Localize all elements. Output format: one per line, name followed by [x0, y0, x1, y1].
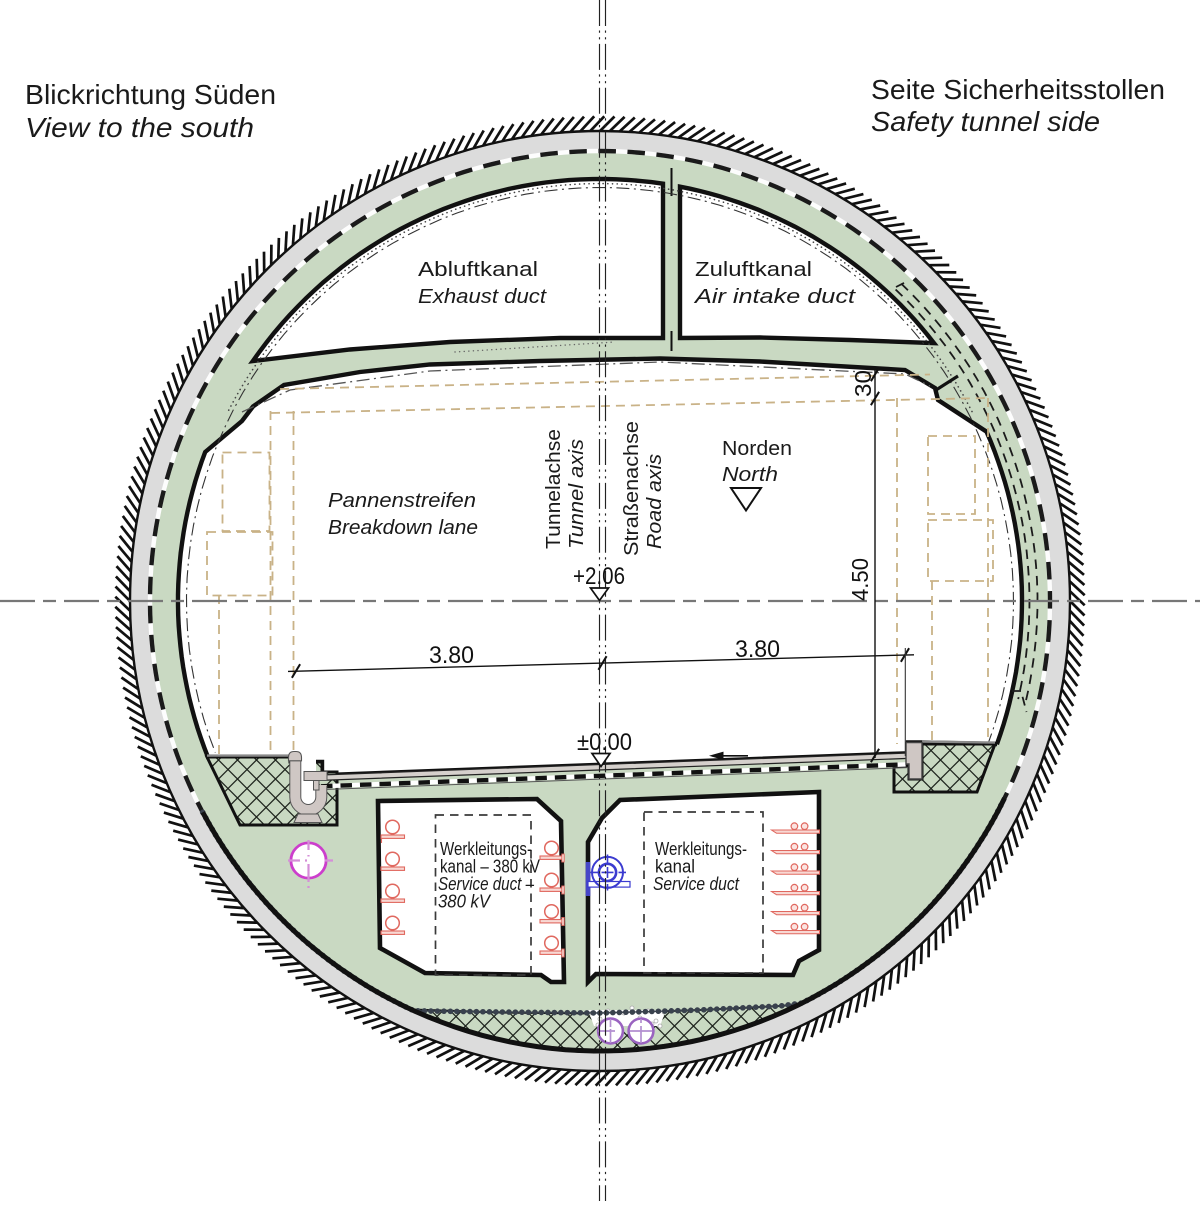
svg-text:30: 30: [850, 370, 876, 397]
svg-text:Blickrichtung Süden: Blickrichtung Süden: [25, 79, 276, 110]
svg-text:Abluftkanal: Abluftkanal: [418, 258, 538, 281]
svg-text:View to the south: View to the south: [25, 112, 254, 143]
svg-text:Breakdown lane: Breakdown lane: [328, 516, 478, 539]
svg-text:Tunnelachse: Tunnelachse: [543, 429, 565, 549]
svg-text:380 kV: 380 kV: [438, 891, 491, 912]
svg-text:Pannenstreifen: Pannenstreifen: [328, 489, 476, 512]
svg-text:+2.06: +2.06: [573, 563, 625, 590]
svg-text:3.80: 3.80: [429, 642, 474, 669]
svg-text:Exhaust duct: Exhaust duct: [418, 285, 547, 308]
svg-text:Zuluftkanal: Zuluftkanal: [695, 258, 812, 281]
svg-text:Norden: Norden: [722, 437, 792, 460]
svg-text:North: North: [722, 463, 778, 486]
svg-text:±0.00: ±0.00: [577, 729, 632, 756]
svg-text:Tunnel axis: Tunnel axis: [566, 439, 588, 549]
svg-text:Road axis: Road axis: [644, 454, 666, 549]
svg-text:Seite Sicherheitsstollen: Seite Sicherheitsstollen: [871, 74, 1165, 105]
svg-text:4.50: 4.50: [847, 558, 873, 601]
svg-text:Service duct: Service duct: [653, 873, 740, 894]
svg-text:Straßenachse: Straßenachse: [621, 421, 643, 556]
svg-text:Air intake duct: Air intake duct: [693, 285, 857, 308]
svg-text:3.80: 3.80: [735, 636, 780, 663]
svg-text:Safety tunnel side: Safety tunnel side: [871, 106, 1100, 137]
